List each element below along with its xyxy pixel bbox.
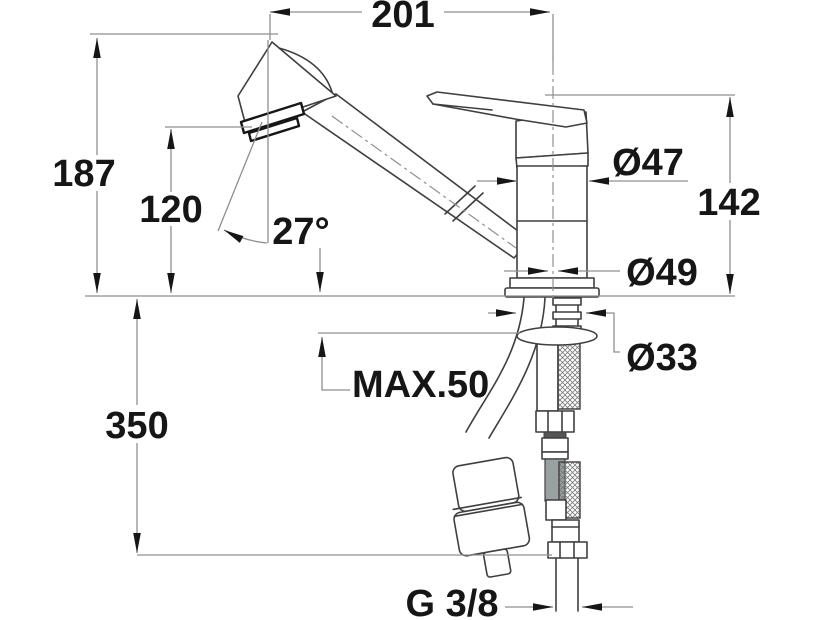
base-flange xyxy=(510,278,594,288)
dim-hose-drop: 350 xyxy=(98,299,176,553)
dim-spout-reach-label: 201 xyxy=(371,0,434,36)
lever-handle xyxy=(427,92,587,127)
dim-spout-outlet-height: 120 xyxy=(134,129,208,293)
dim-body-height-label: 142 xyxy=(697,182,760,224)
dim-max-counter-thickness-label: MAX.50 xyxy=(352,364,489,406)
supply-hose-column xyxy=(536,343,587,611)
dim-overall-height: 187 xyxy=(46,38,120,293)
dim-base-diameter-label: Ø49 xyxy=(626,252,698,294)
dim-spout-reach: 201 xyxy=(270,0,550,36)
angle-jet-reference xyxy=(218,122,262,231)
dim-shank-diameter-label: Ø33 xyxy=(626,337,698,379)
dim-spout-outlet-height-label: 120 xyxy=(139,189,202,231)
spout-tube xyxy=(302,94,530,258)
dim-overall-height-label: 187 xyxy=(52,153,115,195)
faucet-dimension-drawing: 201 187 120 27° 142 Ø47 Ø49 Ø33 xyxy=(0,0,826,620)
faucet-body xyxy=(505,112,599,297)
dim-connection-thread-label: G 3/8 xyxy=(406,583,499,620)
dim-connection-thread: G 3/8 xyxy=(406,583,633,620)
dim-max-counter-thickness: MAX.50 xyxy=(322,337,489,406)
dim-spout-angle: 27° xyxy=(224,211,330,292)
mounting-shank xyxy=(517,298,597,345)
dim-body-height: 142 xyxy=(688,97,770,294)
dim-hose-drop-label: 350 xyxy=(105,405,168,447)
dim-spout-angle-label: 27° xyxy=(272,211,329,253)
dim-body-diameter-label: Ø47 xyxy=(612,142,684,184)
hose-weight xyxy=(445,456,535,582)
drawing-canvas: 201 187 120 27° 142 Ø47 Ø49 Ø33 xyxy=(0,0,826,620)
